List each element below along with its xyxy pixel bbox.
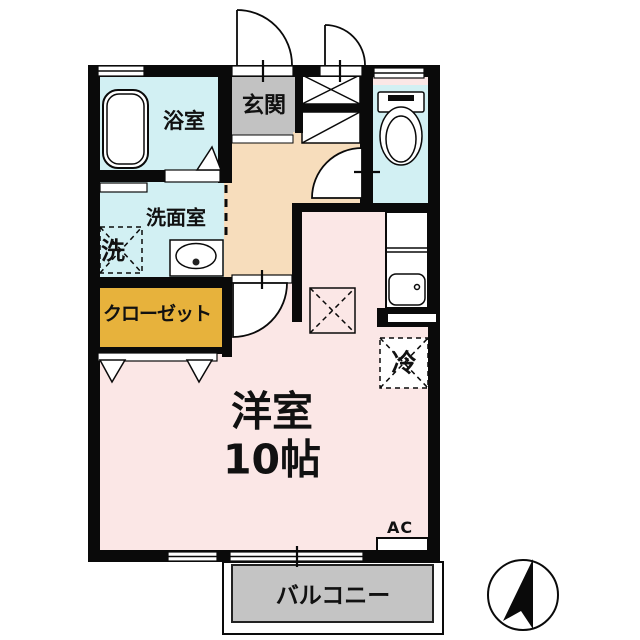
entrance-step (232, 135, 293, 143)
sink-drain (193, 259, 200, 266)
washroom-label: 洗面室 (146, 207, 206, 230)
entrance-door-swing (237, 10, 292, 65)
balcony-label: バルコニー (276, 583, 391, 609)
ac-label: AC (387, 519, 413, 537)
compass-north-icon (488, 559, 558, 630)
exterior-storage-box (302, 75, 360, 104)
kitchen-sink (389, 274, 425, 305)
bathtub (103, 90, 148, 168)
closet-label: クローゼット (103, 304, 211, 326)
kitchen-counter (386, 212, 428, 308)
entrance-label: 玄関 (242, 93, 286, 118)
storage-door-swing (325, 25, 365, 65)
ac-unit (377, 538, 428, 551)
washer-label: 洗 (101, 238, 125, 266)
washroom-sink (170, 240, 223, 276)
hall-storage-box (302, 112, 360, 143)
bath-label: 浴室 (163, 109, 205, 133)
floor-plan: 浴室 玄関 洗面室 洗 クローゼット 洋室 10帖 冷 AC バルコニー (0, 0, 640, 640)
refrigerator-label: 冷 (391, 350, 416, 379)
main-room-label: 洋室 10帖 (223, 388, 321, 485)
hall-area (224, 135, 293, 280)
main-room-label-line1: 洋室 (223, 388, 321, 436)
bath-door-opening (165, 170, 220, 182)
floor-plan-drawing (0, 0, 640, 640)
toilet-fixture (378, 92, 424, 165)
main-room-label-line2: 10帖 (223, 436, 321, 484)
washroom-counter (100, 183, 147, 192)
